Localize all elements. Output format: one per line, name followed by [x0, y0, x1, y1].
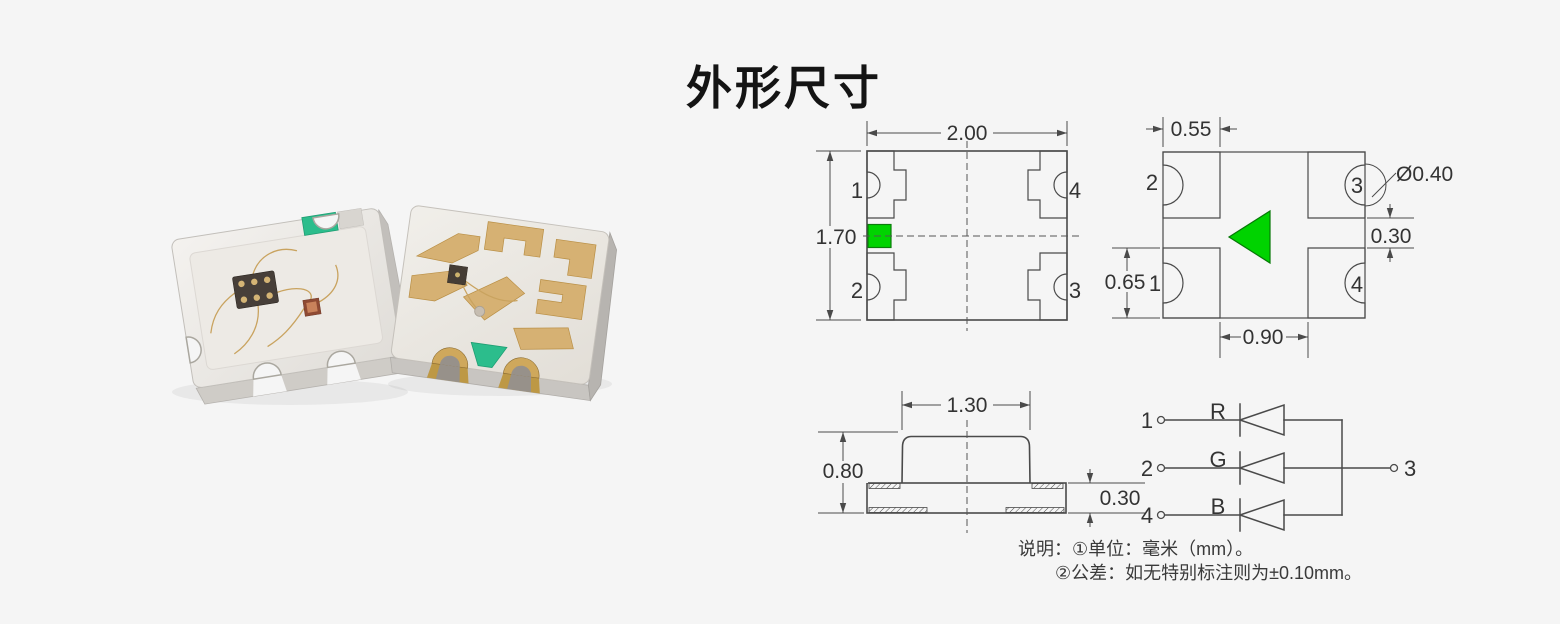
pad-2: [1163, 152, 1220, 218]
pin-label: 4: [1141, 503, 1153, 528]
diode-symbols: [1240, 404, 1284, 531]
dimension-label: 1.30: [947, 394, 988, 417]
dimension-label: 0.65: [1105, 271, 1146, 294]
channel-label-r: R: [1210, 399, 1226, 424]
diode-green: [1240, 453, 1284, 483]
pad-4: [1028, 151, 1067, 218]
dimension-label: 0.30: [1371, 225, 1412, 248]
product-photo: [170, 204, 621, 405]
dimension-label: 0.55: [1171, 118, 1212, 141]
dimension-width: 2.00: [867, 121, 1067, 146]
orientation-green-triangle: [1229, 211, 1270, 263]
pad-label: 2: [1146, 170, 1158, 195]
pin-label: 1: [1141, 408, 1153, 433]
pin-label: 2: [1141, 456, 1153, 481]
pin-label-common: 3: [1404, 456, 1416, 481]
channel-label-b: B: [1211, 494, 1226, 519]
led-die-array: [232, 271, 278, 309]
pad-label: 4: [1069, 178, 1081, 203]
channel-label-g: G: [1209, 447, 1226, 472]
dimension-lens-width: 1.30: [902, 391, 1030, 430]
bottom-view-drawing: 2 3 1 4 0.55 Ø0.40: [1101, 117, 1453, 358]
terminal-pin-1: [1158, 417, 1165, 424]
circuit-wires: [1165, 420, 1390, 515]
note-units: 说明：①单位：毫米（mm）。: [1018, 537, 1362, 561]
terminal-pin-4: [1158, 512, 1165, 519]
pad-label: 1: [1149, 271, 1161, 296]
dimension-total-height: 0.80: [818, 432, 898, 513]
led-component-photo-right: [388, 205, 621, 402]
dimension-label: 1.70: [816, 226, 857, 249]
terminal-pin-3: [1391, 465, 1398, 472]
pad-label: 2: [851, 278, 863, 303]
terminal-pin-2: [1158, 465, 1165, 472]
pad-label: 3: [1069, 278, 1081, 303]
dimension-label: 0.80: [823, 460, 864, 483]
pad-label: 4: [1351, 272, 1363, 297]
datasheet-outline-figure: 1 2 4 3 2.00 1.70: [0, 0, 1560, 624]
note-tolerance: ②公差：如无特别标注则为±0.10mm。: [1055, 561, 1362, 585]
page-title: 外形尺寸: [686, 52, 882, 118]
dimension-base-thickness: 0.30: [1068, 469, 1145, 527]
side-view-drawing: 1.30 0.80 0.30: [818, 391, 1145, 533]
pad-1: [1163, 248, 1220, 318]
notes: 说明：①单位：毫米（mm）。 ②公差：如无特别标注则为±0.10mm。: [1018, 537, 1362, 585]
lens-dome: [902, 437, 1030, 484]
dimension-label: Ø0.40: [1396, 163, 1453, 186]
dimension-notch-diameter: Ø0.40: [1365, 163, 1453, 206]
pad-label: 1: [851, 178, 863, 203]
dimension-gap-horizontal: 0.90: [1220, 322, 1308, 358]
metal-pad: [337, 208, 363, 229]
circuit-diagram: 1 2 4 R G B 3: [1141, 399, 1416, 531]
dimension-label: 2.00: [947, 122, 988, 145]
dimension-gap-vertical: 0.30: [1367, 204, 1414, 262]
top-view-drawing: 1 2 4 3 2.00 1.70: [811, 121, 1082, 331]
dimension-pad-width: 0.55: [1146, 117, 1237, 147]
dimension-label: 0.30: [1100, 487, 1141, 510]
pad-2: [867, 253, 906, 320]
pad-1: [867, 151, 906, 218]
diode-blue: [1240, 500, 1284, 530]
dimension-label: 0.90: [1243, 326, 1284, 349]
led-component-photo-left: [170, 204, 415, 405]
diode-red: [1240, 405, 1284, 435]
pad-3: [1028, 253, 1067, 320]
pad-label: 3: [1351, 173, 1363, 198]
